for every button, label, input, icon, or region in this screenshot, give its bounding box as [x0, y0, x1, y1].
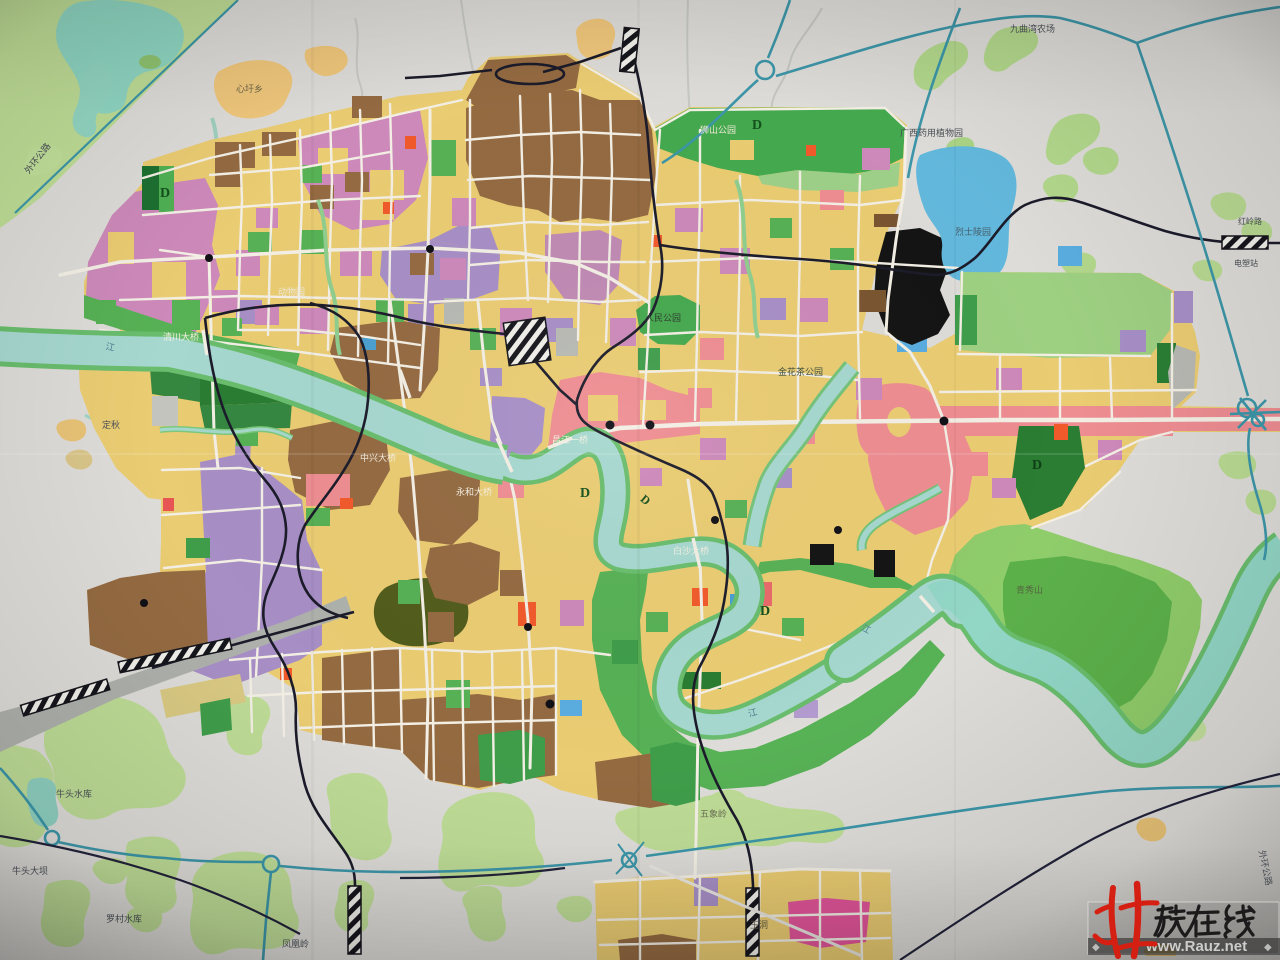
svg-text:www.Rauz.net: www.Rauz.net [1145, 938, 1247, 955]
svg-text:◆: ◆ [1092, 942, 1100, 953]
svg-text:◆: ◆ [1264, 942, 1272, 953]
